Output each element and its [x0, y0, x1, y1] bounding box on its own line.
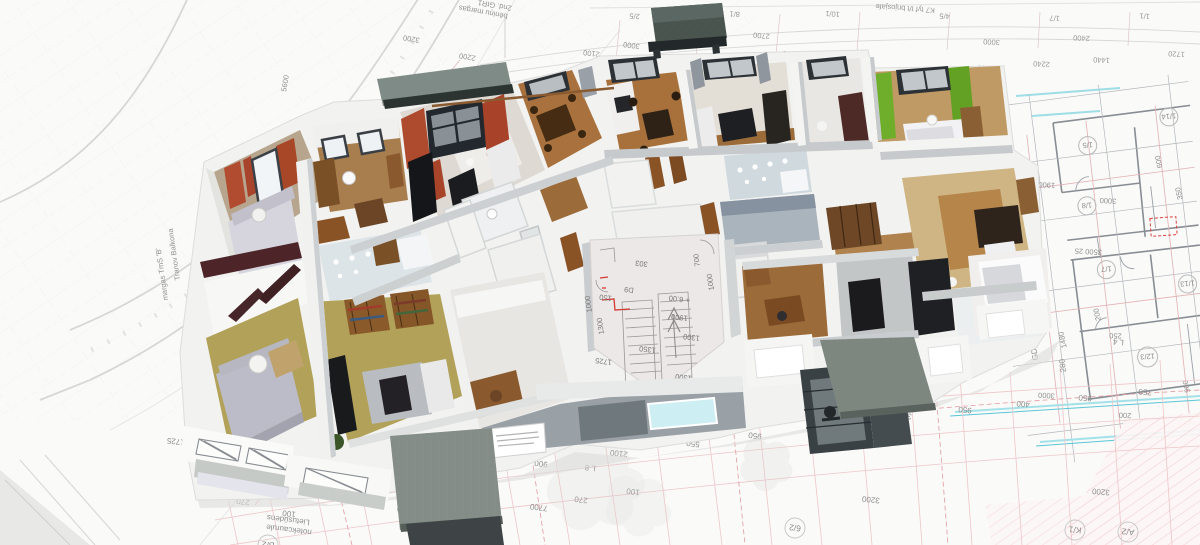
- svg-text:L 4: L 4: [1112, 337, 1124, 347]
- svg-text:3200: 3200: [1091, 486, 1110, 497]
- svg-text:950: 950: [957, 405, 972, 415]
- svg-text:6/2: 6/2: [788, 522, 801, 533]
- svg-text:3500 25: 3500 25: [1075, 246, 1103, 256]
- svg-text:303: 303: [635, 258, 649, 268]
- svg-text:200: 200: [1119, 411, 1132, 421]
- svg-text:A/2: A/2: [1121, 526, 1135, 538]
- svg-text:10/1: 10/1: [825, 9, 840, 19]
- svg-text:D9: D9: [624, 285, 635, 295]
- svg-text:1/8: 1/8: [1081, 200, 1092, 210]
- svg-text:K/1: K/1: [1068, 524, 1082, 536]
- svg-text:1440: 1440: [1093, 55, 1110, 65]
- svg-text:750: 750: [1138, 387, 1153, 397]
- svg-text:3000: 3000: [983, 37, 1000, 47]
- svg-text:3000: 3000: [1099, 196, 1116, 206]
- svg-text:950: 950: [1078, 393, 1093, 403]
- svg-text:3200: 3200: [861, 494, 880, 505]
- svg-text:1/14: 1/14: [1161, 111, 1176, 121]
- svg-text:1/7: 1/7: [1049, 13, 1060, 23]
- svg-text:280: 280: [1057, 358, 1068, 373]
- svg-text:150: 150: [599, 292, 613, 302]
- svg-text:12/3: 12/3: [1140, 351, 1155, 361]
- svg-text:400: 400: [1016, 399, 1031, 409]
- svg-text:1/1: 1/1: [1139, 11, 1150, 21]
- svg-text:4/5: 4/5: [939, 11, 950, 21]
- svg-text:1900: 1900: [1038, 180, 1055, 190]
- svg-text:2240: 2240: [1033, 59, 1050, 69]
- svg-text:2400: 2400: [1073, 33, 1090, 43]
- svg-text:1/5: 1/5: [1082, 140, 1093, 150]
- svg-text:700: 700: [691, 253, 702, 267]
- svg-text:1/7: 1/7: [1101, 264, 1112, 274]
- svg-text:2/5: 2/5: [629, 11, 640, 21]
- svg-text:3000: 3000: [1038, 391, 1055, 401]
- svg-text:1720: 1720: [1168, 49, 1185, 59]
- svg-text:2700: 2700: [753, 31, 770, 41]
- svg-text:8/1: 8/1: [729, 9, 740, 19]
- svg-text:1/13: 1/13: [1180, 278, 1195, 288]
